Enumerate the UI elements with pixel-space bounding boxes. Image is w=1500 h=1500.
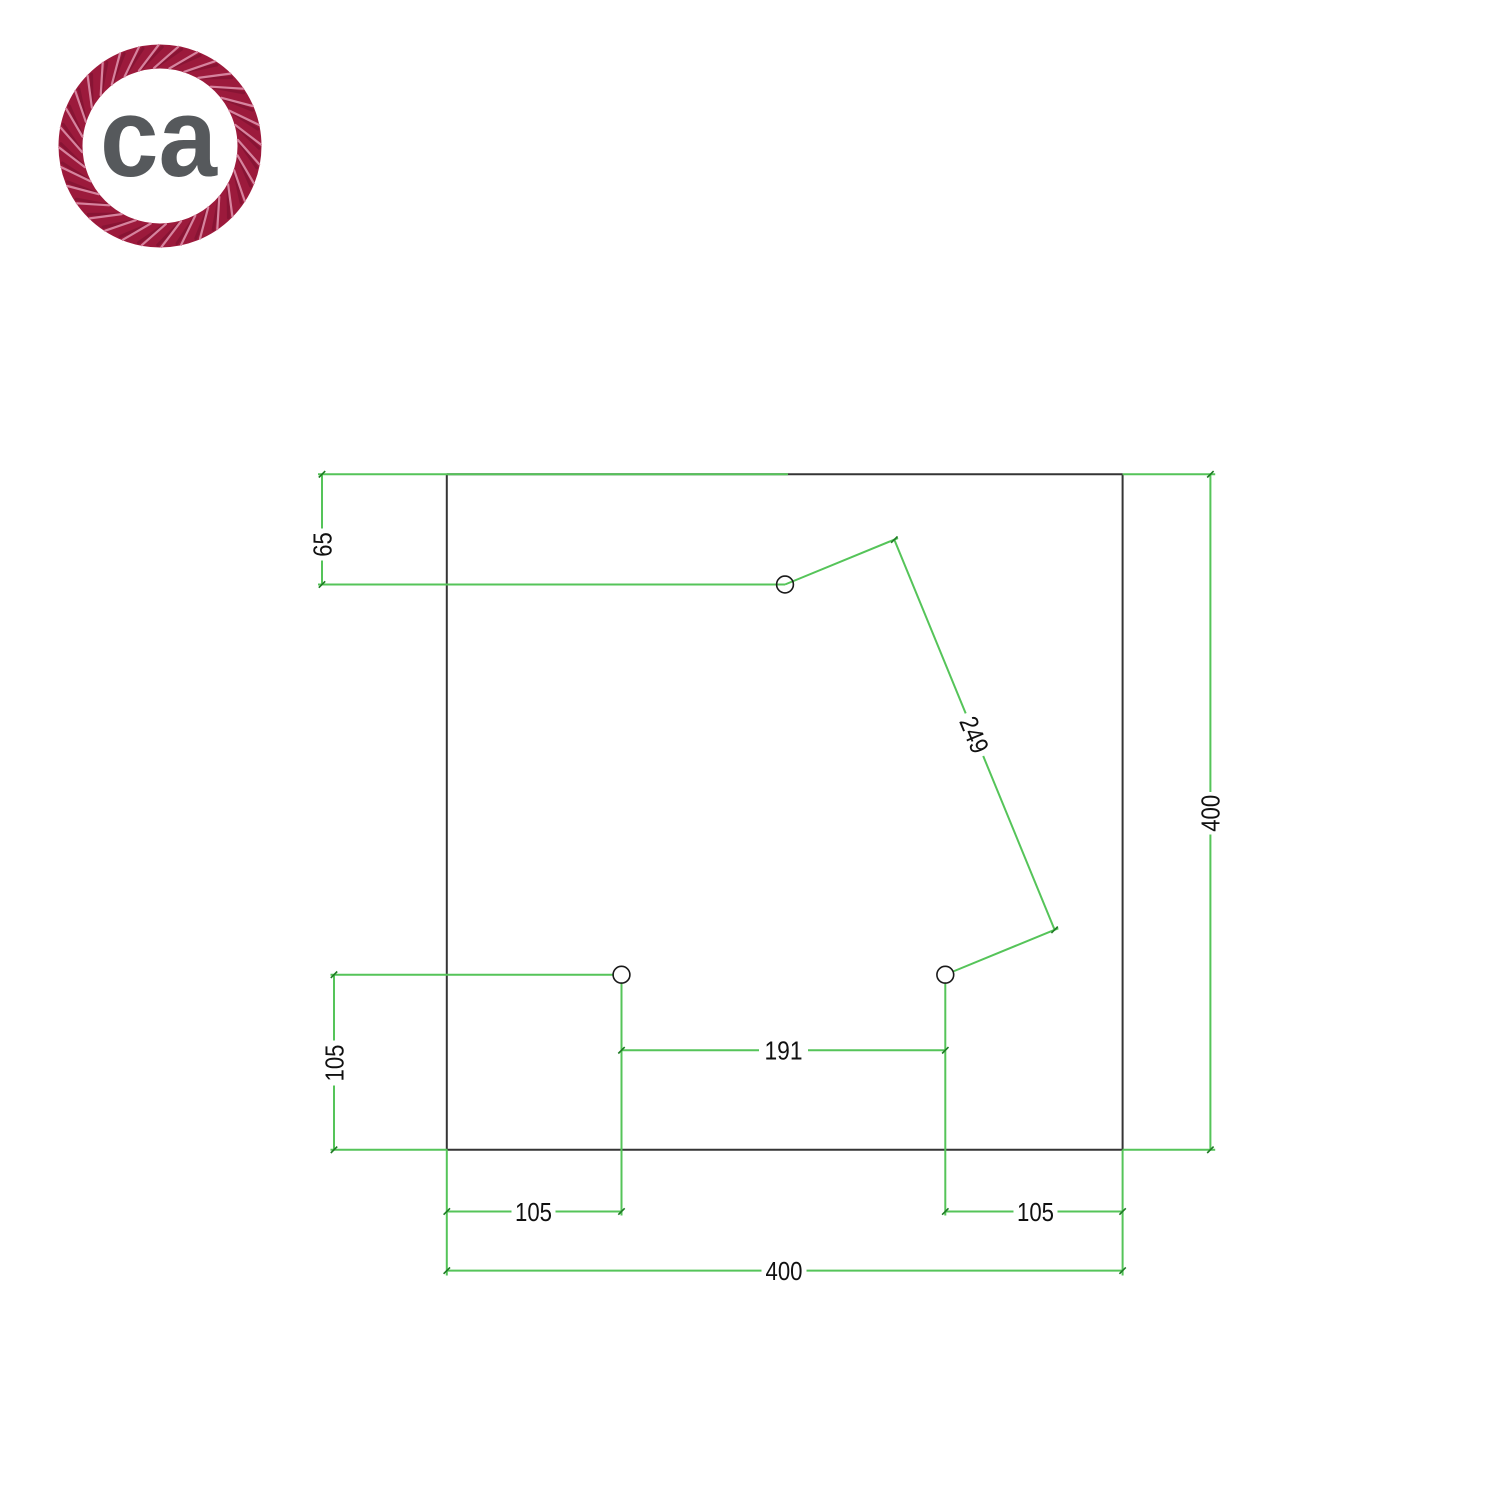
svg-text:ca: ca: [100, 75, 218, 200]
svg-text:105: 105: [515, 1197, 552, 1227]
svg-text:400: 400: [1196, 795, 1226, 832]
svg-text:65: 65: [307, 532, 337, 557]
svg-text:400: 400: [766, 1256, 803, 1286]
svg-text:105: 105: [1017, 1197, 1054, 1227]
svg-text:191: 191: [765, 1036, 803, 1066]
svg-text:105: 105: [319, 1045, 349, 1082]
